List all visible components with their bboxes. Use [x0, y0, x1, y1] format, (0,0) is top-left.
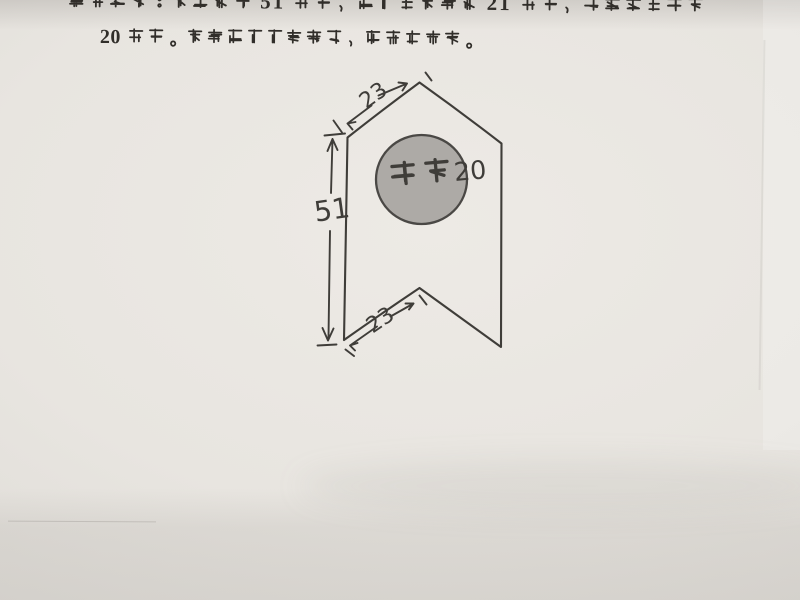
bookmark-diagram: [0, 0, 800, 600]
cjk-glyph: [386, 156, 420, 190]
dimension-left-marks: [318, 134, 346, 346]
document-photo: 51 21 20 23 51 23 20: [0, 0, 800, 600]
dim-left-label: 51: [312, 191, 352, 229]
cjk-glyph: [420, 153, 454, 187]
